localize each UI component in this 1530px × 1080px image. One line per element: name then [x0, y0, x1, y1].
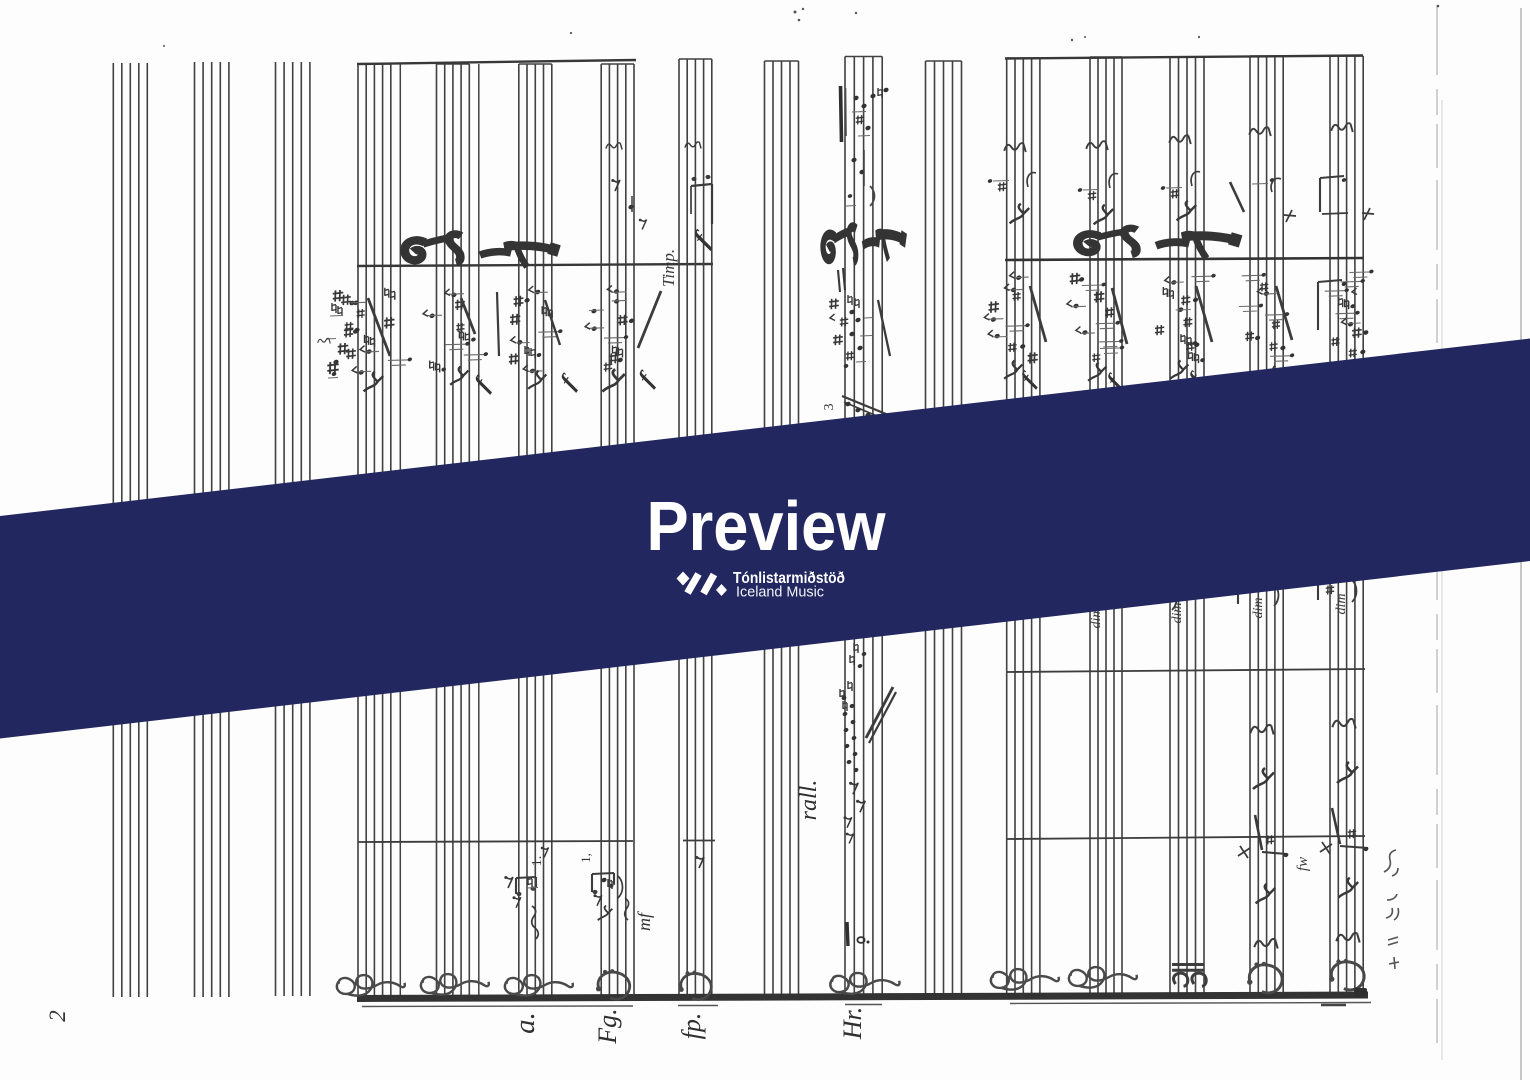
svg-text:1.: 1. — [530, 856, 545, 867]
svg-text:fp.: fp. — [677, 1013, 706, 1040]
svg-text:1,: 1, — [578, 853, 593, 863]
svg-text:3: 3 — [822, 404, 837, 411]
svg-text:mf: mf — [634, 910, 654, 931]
svg-text:Hr.: Hr. — [838, 1007, 867, 1041]
svg-text:Preview: Preview — [647, 487, 886, 565]
svg-text:fw: fw — [1295, 857, 1311, 871]
svg-text:rall.: rall. — [796, 780, 822, 821]
svg-text:dim: dim — [1251, 598, 1266, 619]
svg-text:dim: dim — [1334, 594, 1349, 615]
svg-text:Timp.: Timp. — [659, 249, 678, 287]
svg-text:Fg.: Fg. — [593, 1008, 622, 1044]
svg-text:2: 2 — [45, 1010, 70, 1022]
svg-text:a.: a. — [509, 1012, 541, 1034]
svg-text:Iceland Music: Iceland Music — [736, 584, 824, 601]
svg-text:dim: dim — [1170, 603, 1185, 624]
